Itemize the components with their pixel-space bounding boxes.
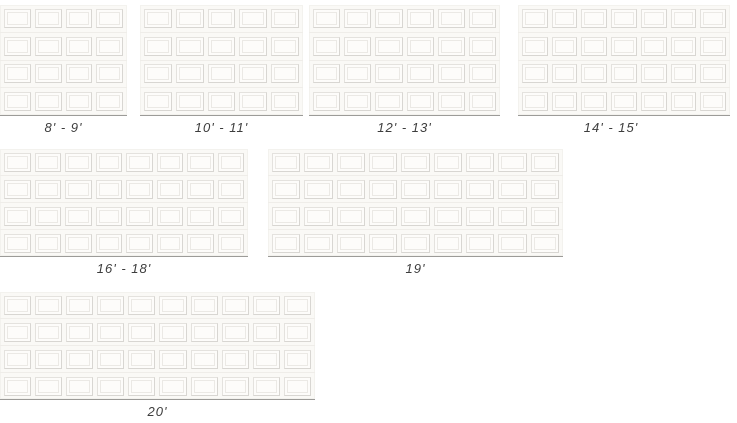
raised-panel <box>375 9 402 28</box>
raised-panel <box>438 92 465 111</box>
raised-panel-inner <box>404 183 426 196</box>
raised-panel-inner <box>469 237 491 250</box>
raised-panel <box>469 9 496 28</box>
raised-panel <box>159 323 186 342</box>
raised-panel-inner <box>38 67 59 80</box>
door-section <box>0 61 127 89</box>
raised-panel <box>65 207 92 226</box>
raised-panel-inner <box>38 380 59 393</box>
raised-panel <box>35 153 62 172</box>
raised-panel <box>434 153 462 172</box>
raised-panel <box>401 234 429 253</box>
raised-panel-inner <box>100 299 121 312</box>
raised-panel <box>66 9 93 28</box>
raised-panel-inner <box>69 299 90 312</box>
door-section <box>0 149 248 176</box>
raised-panel <box>96 37 123 56</box>
raised-panel-inner <box>275 156 297 169</box>
door-width-option-12-13[interactable]: 12' - 13' <box>309 5 500 135</box>
raised-panel-inner <box>316 67 337 80</box>
raised-panel-inner <box>69 380 90 393</box>
raised-panel <box>35 9 62 28</box>
raised-panel-inner <box>469 210 491 223</box>
raised-panel <box>66 37 93 56</box>
raised-panel <box>157 234 184 253</box>
raised-panel <box>284 350 311 369</box>
raised-panel <box>126 207 153 226</box>
garage-door-width-selector: 8' - 9' 10' - 11' 12' - 13' 14' - 15' 16… <box>0 0 737 423</box>
raised-panel-inner <box>38 183 59 196</box>
raised-panel-inner <box>242 95 264 108</box>
raised-panel-inner <box>340 156 362 169</box>
raised-panel <box>65 153 92 172</box>
raised-panel-inner <box>160 183 181 196</box>
raised-panel-inner <box>274 95 296 108</box>
door-section <box>140 33 303 61</box>
raised-panel-inner <box>525 12 545 25</box>
door-section <box>268 176 563 203</box>
raised-panel <box>304 234 332 253</box>
raised-panel-inner <box>274 40 296 53</box>
raised-panel <box>522 92 548 111</box>
raised-panel <box>611 37 637 56</box>
raised-panel-inner <box>437 237 459 250</box>
raised-panel-inner <box>162 380 183 393</box>
raised-panel <box>128 377 155 396</box>
raised-panel-inner <box>99 210 120 223</box>
raised-panel-inner <box>555 95 575 108</box>
raised-panel <box>239 9 267 28</box>
raised-panel-inner <box>100 380 121 393</box>
raised-panel <box>469 37 496 56</box>
raised-panel-inner <box>38 353 59 366</box>
raised-panel-inner <box>99 183 120 196</box>
raised-panel <box>4 37 31 56</box>
raised-panel <box>522 64 548 83</box>
raised-panel-inner <box>211 67 233 80</box>
raised-panel <box>66 350 93 369</box>
raised-panel-inner <box>129 183 150 196</box>
raised-panel <box>222 323 249 342</box>
raised-panel <box>369 207 397 226</box>
raised-panel <box>176 37 204 56</box>
raised-panel <box>4 323 31 342</box>
raised-panel-inner <box>274 67 296 80</box>
raised-panel-inner <box>347 12 368 25</box>
raised-panel <box>66 92 93 111</box>
raised-panel-inner <box>437 156 459 169</box>
raised-panel <box>581 37 607 56</box>
raised-panel-inner <box>644 67 664 80</box>
raised-panel-inner <box>160 237 181 250</box>
raised-panel <box>208 64 236 83</box>
raised-panel-inner <box>340 183 362 196</box>
raised-panel-inner <box>194 380 215 393</box>
garage-door-illustration <box>518 5 730 116</box>
raised-panel-inner <box>404 237 426 250</box>
raised-panel-inner <box>99 237 120 250</box>
raised-panel-inner <box>7 353 28 366</box>
raised-panel <box>191 377 218 396</box>
raised-panel-inner <box>68 237 89 250</box>
raised-panel-inner <box>147 67 169 80</box>
raised-panel <box>531 234 559 253</box>
raised-panel <box>313 64 340 83</box>
door-section <box>518 61 730 89</box>
raised-panel-inner <box>644 95 664 108</box>
raised-panel <box>157 153 184 172</box>
raised-panel <box>375 64 402 83</box>
raised-panel <box>126 153 153 172</box>
raised-panel-inner <box>131 299 152 312</box>
raised-panel <box>4 153 31 172</box>
raised-panel-inner <box>437 210 459 223</box>
door-section <box>0 33 127 61</box>
raised-panel-inner <box>242 67 264 80</box>
raised-panel-inner <box>221 156 242 169</box>
raised-panel <box>407 9 434 28</box>
door-width-option-19[interactable]: 19' <box>268 149 563 276</box>
raised-panel-inner <box>147 40 169 53</box>
raised-panel <box>97 350 124 369</box>
raised-panel <box>272 153 300 172</box>
raised-panel-inner <box>7 299 28 312</box>
door-section <box>309 5 500 33</box>
raised-panel <box>97 323 124 342</box>
door-section <box>0 203 248 230</box>
raised-panel-inner <box>347 95 368 108</box>
door-section <box>140 88 303 115</box>
raised-panel <box>35 92 62 111</box>
raised-panel-inner <box>534 237 556 250</box>
door-width-option-20[interactable]: 20' <box>0 292 315 419</box>
raised-panel-inner <box>162 326 183 339</box>
raised-panel <box>35 323 62 342</box>
raised-panel-inner <box>372 156 394 169</box>
garage-door-illustration <box>0 292 315 400</box>
raised-panel-inner <box>129 210 150 223</box>
raised-panel-inner <box>441 95 462 108</box>
raised-panel <box>253 323 280 342</box>
raised-panel-inner <box>441 40 462 53</box>
door-width-label: 14' - 15' <box>505 120 717 135</box>
raised-panel <box>187 153 214 172</box>
door-width-label: 8' - 9' <box>0 120 127 135</box>
raised-panel <box>522 9 548 28</box>
raised-panel <box>581 92 607 111</box>
raised-panel <box>337 207 365 226</box>
raised-panel-inner <box>340 210 362 223</box>
raised-panel <box>611 64 637 83</box>
raised-panel-inner <box>211 12 233 25</box>
raised-panel-inner <box>703 67 723 80</box>
raised-panel-inner <box>316 95 337 108</box>
raised-panel <box>466 180 494 199</box>
raised-panel <box>671 92 697 111</box>
raised-panel <box>4 64 31 83</box>
raised-panel-inner <box>129 237 150 250</box>
door-section <box>140 61 303 89</box>
raised-panel <box>96 207 123 226</box>
door-width-option-14-15[interactable]: 14' - 15' <box>518 5 730 135</box>
raised-panel <box>313 37 340 56</box>
door-width-label: 16' - 18' <box>0 261 248 276</box>
raised-panel-inner <box>378 95 399 108</box>
raised-panel-inner <box>703 12 723 25</box>
raised-panel-inner <box>584 95 604 108</box>
raised-panel-inner <box>674 67 694 80</box>
raised-panel-inner <box>501 210 523 223</box>
raised-panel <box>218 153 245 172</box>
raised-panel-inner <box>7 183 28 196</box>
raised-panel <box>466 234 494 253</box>
door-width-option-16-18[interactable]: 16' - 18' <box>0 149 248 276</box>
raised-panel <box>522 37 548 56</box>
door-section <box>0 373 315 399</box>
raised-panel-inner <box>7 326 28 339</box>
raised-panel-inner <box>221 210 242 223</box>
raised-panel <box>375 37 402 56</box>
raised-panel <box>552 37 578 56</box>
raised-panel-inner <box>69 40 90 53</box>
garage-door-illustration <box>140 5 303 116</box>
raised-panel <box>159 296 186 315</box>
raised-panel <box>700 9 726 28</box>
raised-panel <box>641 92 667 111</box>
raised-panel <box>498 180 526 199</box>
door-section <box>518 5 730 33</box>
raised-panel-inner <box>372 183 394 196</box>
raised-panel-inner <box>441 12 462 25</box>
raised-panel <box>581 64 607 83</box>
raised-panel-inner <box>307 210 329 223</box>
raised-panel-inner <box>555 67 575 80</box>
raised-panel-inner <box>221 237 242 250</box>
raised-panel-inner <box>316 12 337 25</box>
raised-panel <box>128 350 155 369</box>
raised-panel <box>253 377 280 396</box>
raised-panel-inner <box>7 380 28 393</box>
raised-panel <box>35 377 62 396</box>
raised-panel <box>157 180 184 199</box>
raised-panel <box>144 92 172 111</box>
raised-panel <box>239 92 267 111</box>
raised-panel-inner <box>472 12 493 25</box>
raised-panel-inner <box>584 67 604 80</box>
door-section <box>140 5 303 33</box>
raised-panel <box>313 9 340 28</box>
door-width-label: 12' - 13' <box>309 120 500 135</box>
raised-panel-inner <box>469 156 491 169</box>
raised-panel <box>96 9 123 28</box>
raised-panel <box>438 37 465 56</box>
raised-panel-inner <box>441 67 462 80</box>
raised-panel-inner <box>7 210 28 223</box>
raised-panel-inner <box>194 299 215 312</box>
raised-panel-inner <box>472 40 493 53</box>
raised-panel-inner <box>347 67 368 80</box>
raised-panel-inner <box>534 183 556 196</box>
raised-panel-inner <box>674 95 694 108</box>
raised-panel <box>159 350 186 369</box>
raised-panel <box>159 377 186 396</box>
raised-panel-inner <box>147 95 169 108</box>
raised-panel-inner <box>38 299 59 312</box>
raised-panel-inner <box>378 12 399 25</box>
raised-panel <box>187 234 214 253</box>
raised-panel <box>469 64 496 83</box>
door-section <box>518 33 730 61</box>
raised-panel-inner <box>194 353 215 366</box>
raised-panel-inner <box>256 299 277 312</box>
raised-panel-inner <box>69 95 90 108</box>
raised-panel <box>271 9 299 28</box>
raised-panel-inner <box>38 237 59 250</box>
raised-panel <box>552 9 578 28</box>
raised-panel <box>641 37 667 56</box>
raised-panel <box>434 180 462 199</box>
raised-panel <box>157 207 184 226</box>
raised-panel-inner <box>242 12 264 25</box>
raised-panel <box>126 180 153 199</box>
raised-panel-inner <box>525 40 545 53</box>
raised-panel <box>531 153 559 172</box>
raised-panel-inner <box>211 40 233 53</box>
raised-panel <box>187 180 214 199</box>
raised-panel <box>66 377 93 396</box>
door-section <box>309 61 500 89</box>
raised-panel <box>128 296 155 315</box>
raised-panel <box>434 207 462 226</box>
raised-panel <box>434 234 462 253</box>
raised-panel-inner <box>99 40 120 53</box>
raised-panel <box>239 37 267 56</box>
raised-panel-inner <box>99 95 120 108</box>
raised-panel-inner <box>160 156 181 169</box>
raised-panel <box>671 64 697 83</box>
raised-panel <box>65 234 92 253</box>
raised-panel-inner <box>275 237 297 250</box>
raised-panel-inner <box>404 210 426 223</box>
raised-panel-inner <box>7 156 28 169</box>
raised-panel-inner <box>469 183 491 196</box>
raised-panel <box>344 92 371 111</box>
raised-panel-inner <box>100 326 121 339</box>
raised-panel <box>144 9 172 28</box>
door-section <box>268 149 563 176</box>
raised-panel-inner <box>674 12 694 25</box>
raised-panel <box>222 377 249 396</box>
raised-panel-inner <box>307 237 329 250</box>
raised-panel-inner <box>256 380 277 393</box>
raised-panel-inner <box>190 210 211 223</box>
raised-panel <box>96 64 123 83</box>
raised-panel-inner <box>410 40 431 53</box>
raised-panel <box>671 9 697 28</box>
raised-panel <box>4 296 31 315</box>
raised-panel-inner <box>147 12 169 25</box>
garage-door-illustration <box>0 5 127 116</box>
raised-panel <box>218 234 245 253</box>
raised-panel <box>218 180 245 199</box>
door-section <box>0 230 248 256</box>
raised-panel-inner <box>69 12 90 25</box>
raised-panel-inner <box>614 40 634 53</box>
raised-panel-inner <box>68 210 89 223</box>
raised-panel-inner <box>38 95 59 108</box>
raised-panel-inner <box>38 326 59 339</box>
raised-panel <box>700 92 726 111</box>
door-section <box>268 203 563 230</box>
door-width-label: 19' <box>268 261 563 276</box>
raised-panel <box>401 180 429 199</box>
raised-panel-inner <box>555 40 575 53</box>
raised-panel-inner <box>584 12 604 25</box>
raised-panel <box>344 64 371 83</box>
raised-panel <box>96 180 123 199</box>
raised-panel <box>4 180 31 199</box>
raised-panel <box>222 350 249 369</box>
raised-panel <box>35 296 62 315</box>
raised-panel-inner <box>211 95 233 108</box>
raised-panel <box>4 234 31 253</box>
raised-panel-inner <box>534 210 556 223</box>
raised-panel <box>66 323 93 342</box>
door-width-option-10-11[interactable]: 10' - 11' <box>140 5 303 135</box>
raised-panel <box>671 37 697 56</box>
raised-panel <box>35 234 62 253</box>
raised-panel <box>304 207 332 226</box>
raised-panel-inner <box>194 326 215 339</box>
raised-panel-inner <box>614 67 634 80</box>
raised-panel <box>369 153 397 172</box>
raised-panel-inner <box>129 156 150 169</box>
raised-panel <box>4 9 31 28</box>
raised-panel-inner <box>525 95 545 108</box>
raised-panel-inner <box>410 67 431 80</box>
raised-panel-inner <box>99 12 120 25</box>
raised-panel <box>97 377 124 396</box>
raised-panel-inner <box>99 156 120 169</box>
raised-panel <box>369 180 397 199</box>
raised-panel-inner <box>131 326 152 339</box>
raised-panel <box>531 207 559 226</box>
garage-door-illustration <box>268 149 563 257</box>
raised-panel <box>498 207 526 226</box>
raised-panel-inner <box>256 353 277 366</box>
raised-panel-inner <box>287 299 308 312</box>
raised-panel <box>552 64 578 83</box>
raised-panel <box>641 64 667 83</box>
raised-panel <box>304 153 332 172</box>
raised-panel-inner <box>372 237 394 250</box>
raised-panel <box>239 64 267 83</box>
raised-panel-inner <box>703 95 723 108</box>
garage-door-illustration <box>309 5 500 116</box>
raised-panel <box>176 92 204 111</box>
door-width-label: 10' - 11' <box>140 120 303 135</box>
raised-panel <box>4 207 31 226</box>
door-section <box>0 176 248 203</box>
raised-panel-inner <box>472 67 493 80</box>
raised-panel <box>191 296 218 315</box>
door-section <box>268 230 563 256</box>
raised-panel <box>4 377 31 396</box>
raised-panel <box>337 180 365 199</box>
door-width-option-8-9[interactable]: 8' - 9' <box>0 5 127 135</box>
raised-panel-inner <box>7 95 28 108</box>
raised-panel-inner <box>179 40 201 53</box>
